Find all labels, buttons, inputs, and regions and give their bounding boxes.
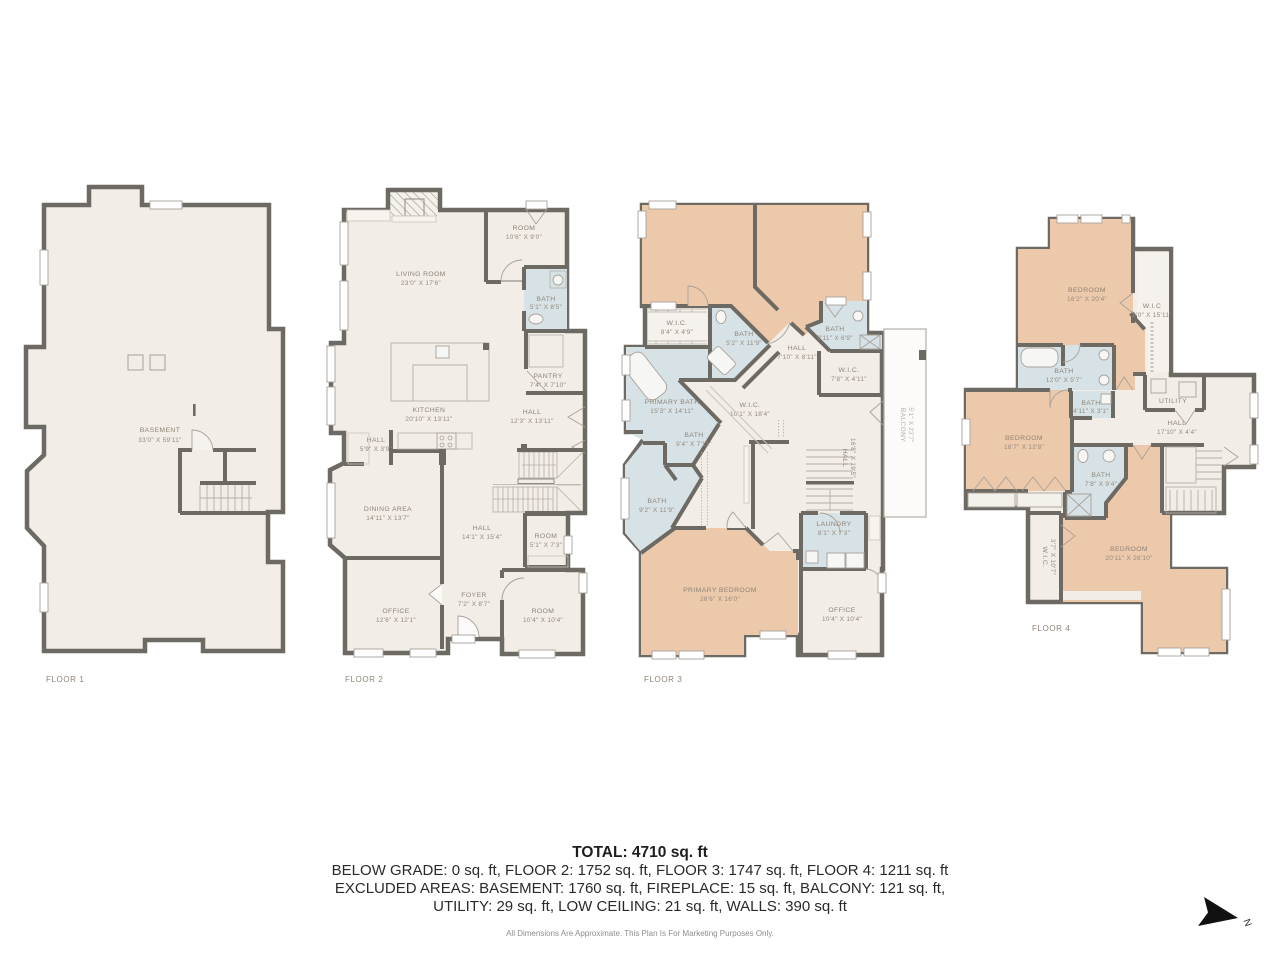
svg-text:PANTRY: PANTRY	[533, 373, 562, 380]
svg-text:W.I.C.: W.I.C.	[667, 320, 688, 327]
svg-text:9'2" X 11'9": 9'2" X 11'9"	[639, 507, 675, 514]
svg-text:20'10" X 13'11": 20'10" X 13'11"	[405, 416, 452, 423]
svg-text:BATH: BATH	[734, 331, 753, 338]
svg-text:BATH: BATH	[536, 296, 555, 303]
svg-text:16'2" X 20'4": 16'2" X 20'4"	[1067, 296, 1107, 303]
svg-text:7'4" X 7'10": 7'4" X 7'10"	[530, 382, 566, 389]
svg-text:6'0" X 15'11": 6'0" X 15'11"	[1132, 312, 1172, 319]
svg-text:BATH: BATH	[1081, 400, 1100, 407]
svg-text:8'4" X 4'9": 8'4" X 4'9"	[661, 329, 693, 336]
svg-text:BATH: BATH	[684, 432, 703, 439]
svg-text:28'6" X 16'0": 28'6" X 16'0"	[700, 596, 740, 603]
svg-text:14'11" X 13'7": 14'11" X 13'7"	[366, 515, 409, 522]
svg-text:FLOOR 4: FLOOR 4	[1032, 624, 1070, 633]
svg-text:OFFICE: OFFICE	[828, 607, 855, 614]
svg-text:W.I.C.: W.I.C.	[740, 402, 761, 409]
svg-text:ROOM: ROOM	[535, 533, 558, 540]
svg-text:7'8" X 9'4": 7'8" X 9'4"	[1085, 481, 1117, 488]
svg-text:17'10" X 4'4": 17'10" X 4'4"	[1157, 429, 1197, 436]
svg-text:12'6" X 12'1": 12'6" X 12'1"	[376, 617, 416, 624]
svg-text:7'10" X 8'11": 7'10" X 8'11"	[777, 354, 817, 361]
svg-text:12'3" X 13'11": 12'3" X 13'11"	[510, 418, 553, 425]
svg-text:KITCHEN: KITCHEN	[413, 407, 446, 414]
svg-text:ROOM: ROOM	[532, 608, 555, 615]
svg-text:14'1" X 15'4": 14'1" X 15'4"	[462, 534, 502, 541]
svg-text:LAUNDRY: LAUNDRY	[816, 521, 851, 528]
svg-text:W.I.C.: W.I.C.	[1041, 547, 1048, 568]
svg-text:BELOW GRADE: 0 sq. ft, FLOOR 2: BELOW GRADE: 0 sq. ft, FLOOR 2: 1752 sq.…	[332, 862, 949, 879]
svg-text:8'1" X 7'3": 8'1" X 7'3"	[818, 530, 850, 537]
svg-text:15'3" X 14'11": 15'3" X 14'11"	[650, 408, 693, 415]
svg-text:BATH: BATH	[647, 498, 666, 505]
svg-text:5'2" X 11'9": 5'2" X 11'9"	[726, 340, 762, 347]
svg-text:BEDROOM: BEDROOM	[1068, 287, 1106, 294]
svg-text:23'0" X 17'6": 23'0" X 17'6"	[401, 280, 441, 287]
svg-text:LIVING ROOM: LIVING ROOM	[396, 271, 446, 278]
svg-text:BALCONY: BALCONY	[899, 408, 906, 443]
svg-text:UTILITY: UTILITY	[1159, 398, 1187, 405]
svg-text:EXCLUDED AREAS: BASEMENT: 1760: EXCLUDED AREAS: BASEMENT: 1760 sq. ft, F…	[335, 880, 945, 897]
svg-text:W.I.C.: W.I.C.	[839, 367, 860, 374]
svg-text:16'8" X 19'5": 16'8" X 19'5"	[849, 438, 856, 478]
svg-text:All Dimensions Are Approximate: All Dimensions Are Approximate. This Pla…	[506, 929, 774, 938]
svg-text:5'1" X 7'3": 5'1" X 7'3"	[530, 542, 562, 549]
svg-text:FOYER: FOYER	[461, 592, 486, 599]
svg-text:5'1" X 8'5": 5'1" X 8'5"	[530, 304, 562, 311]
svg-text:BEDROOM: BEDROOM	[1005, 435, 1043, 442]
svg-text:33'0" X 59'11": 33'0" X 59'11"	[138, 437, 181, 444]
svg-text:OFFICE: OFFICE	[382, 608, 409, 615]
svg-text:N: N	[1240, 918, 1253, 929]
svg-text:BATH: BATH	[1054, 368, 1073, 375]
svg-text:7'8" X 4'11": 7'8" X 4'11"	[831, 376, 867, 383]
svg-text:FLOOR 2: FLOOR 2	[345, 675, 383, 684]
svg-text:BATH: BATH	[825, 326, 844, 333]
svg-text:HALL: HALL	[473, 525, 492, 532]
svg-text:PRIMARY BEDROOM: PRIMARY BEDROOM	[683, 587, 757, 594]
svg-text:UTILITY: 29 sq. ft, LOW CEILIN: UTILITY: 29 sq. ft, LOW CEILING: 21 sq. …	[433, 898, 848, 915]
svg-text:12'0" X 5'7": 12'0" X 5'7"	[1046, 377, 1082, 384]
svg-text:5'9" X 3'9": 5'9" X 3'9"	[360, 446, 392, 453]
svg-text:4'11" X 3'1": 4'11" X 3'1"	[1073, 408, 1109, 415]
svg-text:3'7" X 10'7": 3'7" X 10'7"	[1049, 539, 1056, 575]
svg-text:10'4" X 10'4": 10'4" X 10'4"	[523, 617, 563, 624]
svg-text:W.I.C: W.I.C	[1143, 303, 1162, 310]
svg-text:9'11" X 6'9": 9'11" X 6'9"	[817, 335, 853, 342]
svg-text:HALL: HALL	[788, 345, 807, 352]
svg-text:9'4" X 7'11": 9'4" X 7'11"	[676, 441, 712, 448]
svg-text:20'11" X 26'10": 20'11" X 26'10"	[1105, 555, 1152, 562]
svg-text:BASEMENT: BASEMENT	[140, 427, 181, 434]
svg-text:BATH: BATH	[1091, 472, 1110, 479]
svg-text:7'2" X 8'7": 7'2" X 8'7"	[458, 601, 490, 608]
svg-text:TOTAL: 4710 sq. ft: TOTAL: 4710 sq. ft	[572, 844, 708, 861]
svg-text:18'7" X 12'8": 18'7" X 12'8"	[1004, 444, 1044, 451]
svg-text:10'6" X 9'0": 10'6" X 9'0"	[506, 234, 542, 241]
svg-text:DINING AREA: DINING AREA	[364, 506, 412, 513]
svg-text:FLOOR 3: FLOOR 3	[644, 675, 682, 684]
svg-text:PRIMARY BATH: PRIMARY BATH	[644, 399, 699, 406]
svg-text:10'4" X 10'4": 10'4" X 10'4"	[822, 616, 862, 623]
svg-text:HALL: HALL	[367, 437, 386, 444]
svg-text:FLOOR 1: FLOOR 1	[46, 675, 84, 684]
svg-text:BEDROOM: BEDROOM	[1110, 546, 1148, 553]
svg-text:HALL: HALL	[841, 449, 848, 468]
svg-text:ROOM: ROOM	[513, 225, 536, 232]
svg-text:HALL: HALL	[523, 409, 542, 416]
svg-text:5'1" X 23'7": 5'1" X 23'7"	[907, 407, 914, 442]
